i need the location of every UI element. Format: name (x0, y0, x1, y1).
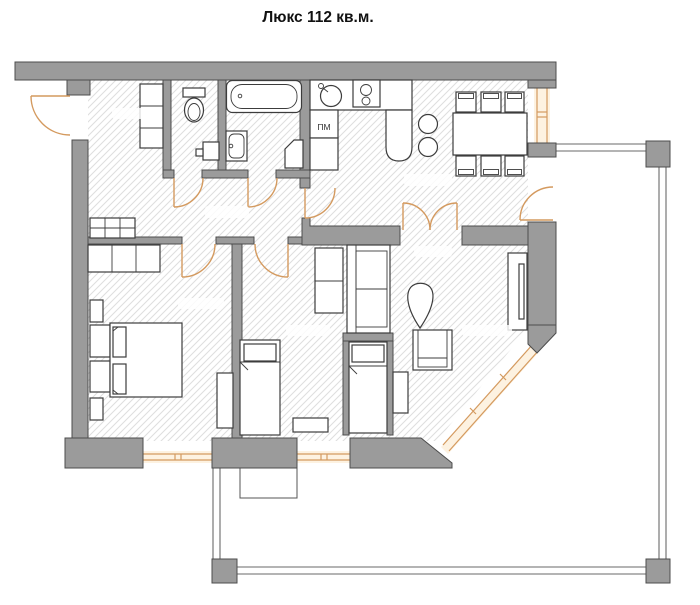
bar-counter (386, 110, 412, 161)
wall-entrance-jamb (67, 80, 90, 95)
dresser (90, 398, 103, 420)
wall-wc-left (163, 80, 171, 172)
kitchen-cabinet (310, 138, 338, 170)
floor-plan-page: Люкс 112 кв.м. (0, 0, 700, 600)
pillow (352, 345, 384, 362)
terrace-pillar (212, 559, 237, 583)
dining-chair (505, 92, 524, 112)
wall-living-north-east (462, 226, 528, 245)
dining-table (453, 113, 527, 155)
wall-bottom (212, 438, 297, 468)
dining-chair (481, 156, 501, 176)
bar-stool (419, 138, 438, 157)
entrance-door (31, 96, 70, 135)
dresser (293, 418, 328, 432)
pillow (113, 364, 126, 394)
wall-east (528, 222, 556, 325)
tv (519, 264, 524, 319)
wall-east (528, 80, 556, 88)
room-label-smudge (286, 325, 330, 336)
wall-top (15, 62, 556, 80)
bar-stool (419, 115, 438, 134)
dining-chair (481, 92, 501, 112)
dishwasher-label: ПМ (317, 122, 330, 132)
wall-niche-west (343, 341, 349, 435)
wall-bath-south (202, 170, 248, 178)
wall-bath-south (276, 170, 310, 178)
wall-niche-north (343, 333, 393, 341)
wardrobe (88, 245, 160, 272)
wall-left (72, 140, 88, 440)
wall-bay-upper (528, 325, 556, 353)
cooktop (353, 80, 380, 107)
pillow (113, 327, 126, 357)
wall-bottom (65, 438, 143, 468)
planter (240, 467, 297, 498)
room-label-smudge (404, 174, 452, 186)
room-label-smudge (112, 108, 152, 119)
plan-title: Люкс 112 кв.м. (262, 9, 373, 26)
tall-cabinet (217, 373, 233, 428)
terrace-pillar (646, 559, 670, 583)
dining-chair (505, 156, 524, 176)
wall-niche-east (387, 341, 393, 435)
wall-corridor-south (288, 237, 302, 244)
nightstand (90, 361, 110, 392)
dining-set (453, 92, 527, 176)
wardrobe (315, 248, 343, 313)
dining-chair (456, 156, 476, 176)
bedroom-window (143, 451, 212, 463)
wall-east (528, 143, 556, 157)
wc-sink-faucet (196, 149, 203, 156)
wall-wc-south (163, 170, 174, 178)
wc-sink (203, 142, 219, 160)
room-label-smudge (414, 246, 452, 257)
dresser (90, 300, 103, 322)
toilet (185, 98, 204, 122)
kids-room-window (297, 451, 350, 463)
kids-room-2-furniture (349, 342, 387, 433)
toilet-tank (183, 88, 205, 97)
nightstand (90, 325, 110, 357)
room-label-smudge (462, 325, 512, 336)
terrace-pillar (646, 141, 670, 167)
pillow (244, 344, 276, 361)
wall-corridor-south (216, 237, 254, 244)
kitchen-window (534, 86, 550, 143)
wall-bay-lower (350, 438, 452, 468)
armchair (413, 330, 452, 370)
room-label-smudge (178, 298, 224, 309)
dining-chair (456, 92, 476, 112)
floor-plan-drawing: Люкс 112 кв.м. (0, 0, 700, 600)
room-label-smudge (205, 206, 249, 218)
console (393, 372, 408, 413)
